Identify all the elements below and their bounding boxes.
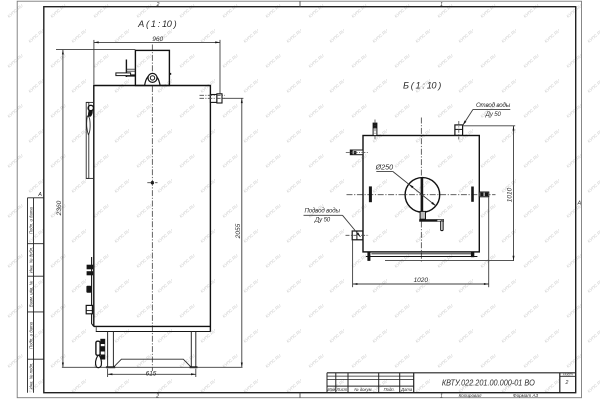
svg-text:Дата: Дата — [400, 387, 413, 392]
svg-text:Лист: Лист — [336, 387, 348, 392]
svg-text:№ докум.: № докум. — [354, 387, 372, 392]
svg-text:2: 2 — [156, 2, 160, 8]
svg-text:А: А — [576, 201, 581, 207]
svg-text:Подп. и дата: Подп. и дата — [28, 207, 33, 235]
svg-text:Подвод воды: Подвод воды — [305, 207, 341, 214]
svg-text:Взам. инв. №: Взам. инв. № — [28, 280, 33, 307]
svg-text:1: 1 — [440, 2, 443, 8]
svg-text:Ду 50: Ду 50 — [314, 217, 331, 224]
svg-text:Лист: Лист — [562, 373, 573, 377]
svg-text:Б ( 1 : 10 ): Б ( 1 : 10 ) — [403, 81, 441, 91]
svg-text:615: 615 — [146, 370, 157, 377]
svg-text:Отвод воды: Отвод воды — [476, 102, 511, 109]
svg-text:Ду 50: Ду 50 — [485, 111, 502, 118]
svg-text:Подп.: Подп. — [384, 387, 395, 392]
svg-text:Формат А3: Формат А3 — [513, 393, 539, 398]
svg-text:Инв. № дубл.: Инв. № дубл. — [28, 247, 33, 273]
svg-text:Подп. и дата: Подп. и дата — [28, 321, 33, 349]
svg-text:1: 1 — [440, 393, 443, 399]
svg-text:2: 2 — [155, 393, 159, 399]
svg-text:1010: 1010 — [506, 187, 513, 202]
svg-text:А ( 1 : 10 ): А ( 1 : 10 ) — [137, 19, 176, 29]
svg-text:Копировал: Копировал — [459, 393, 482, 398]
svg-text:Инв. № подл.: Инв. № подл. — [28, 363, 33, 390]
svg-text:2: 2 — [565, 380, 569, 386]
svg-text:Ø250: Ø250 — [375, 162, 394, 171]
svg-text:960: 960 — [152, 36, 163, 43]
svg-text:1020: 1020 — [414, 277, 429, 284]
svg-text:2055: 2055 — [235, 223, 242, 239]
svg-text:2360: 2360 — [56, 200, 63, 216]
svg-text:А: А — [37, 192, 42, 198]
svg-text:Изм: Изм — [328, 387, 336, 392]
svg-text:КВТУ.022.201.00.000-01 ВО: КВТУ.022.201.00.000-01 ВО — [442, 378, 535, 388]
